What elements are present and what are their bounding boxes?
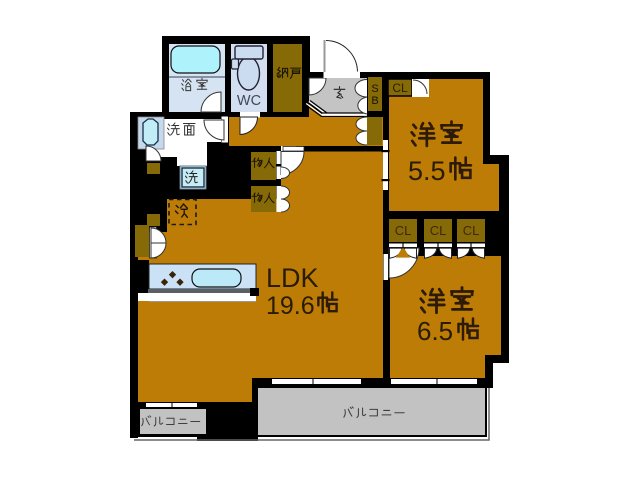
svg-text:LDK: LDK [266,263,319,293]
svg-text:S: S [371,83,378,95]
svg-text:6.5: 6.5 [417,316,453,346]
svg-text:CL: CL [392,81,408,95]
svg-text:CL: CL [395,223,412,238]
svg-text:CL: CL [463,223,480,238]
svg-text:WC: WC [237,93,261,109]
svg-text:B: B [371,95,378,107]
svg-text:19.6: 19.6 [266,292,315,320]
svg-text:5.5: 5.5 [408,156,446,186]
svg-text:CL: CL [430,223,447,238]
